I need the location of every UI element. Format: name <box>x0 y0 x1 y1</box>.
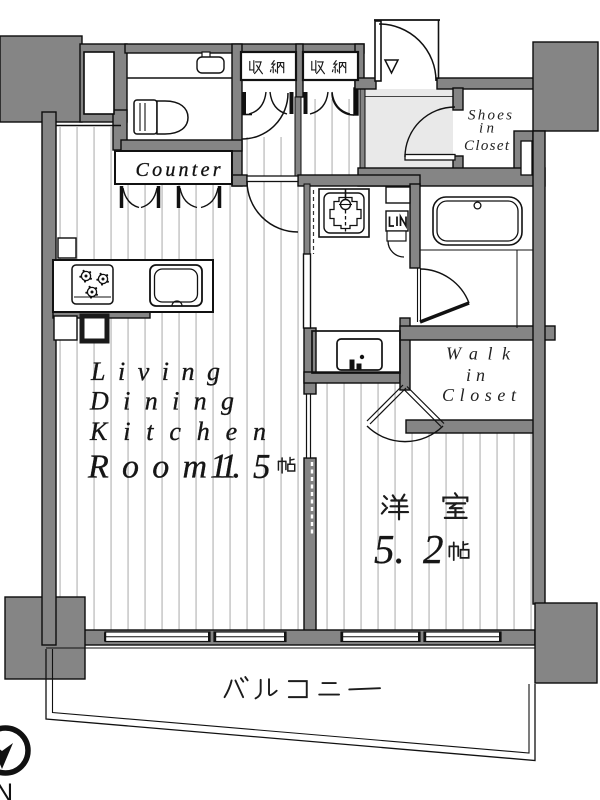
svg-text:in: in <box>479 121 494 137</box>
svg-text:N: N <box>0 779 13 800</box>
svg-text:5: 5 <box>253 447 271 486</box>
svg-text:in: in <box>466 365 485 385</box>
svg-text:2: 2 <box>423 526 444 572</box>
svg-text:Closet: Closet <box>464 138 510 154</box>
svg-text:5.: 5. <box>374 526 405 572</box>
svg-text:Counter: Counter <box>136 159 221 181</box>
svg-text:11.: 11. <box>210 447 238 486</box>
